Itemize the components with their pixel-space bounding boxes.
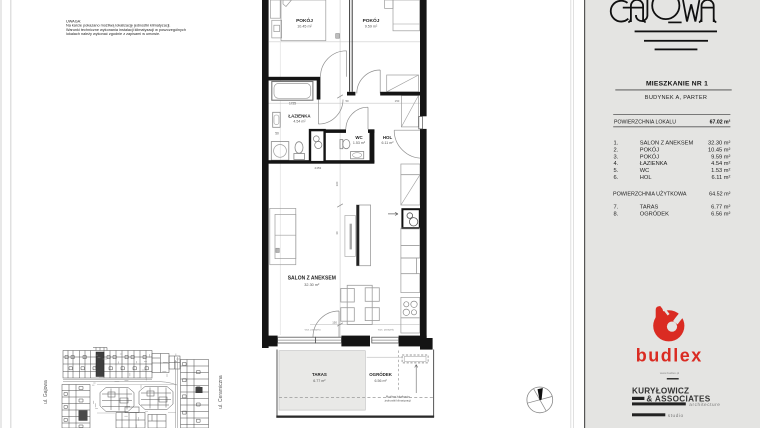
svg-text:POKÓJ: POKÓJ	[640, 147, 659, 154]
svg-text:67.02 m²: 67.02 m²	[710, 119, 731, 125]
svg-text:6.: 6.	[614, 175, 619, 181]
svg-text:SALON Z ANEKSEM: SALON Z ANEKSEM	[640, 141, 694, 147]
svg-text:studio: studio	[668, 413, 684, 418]
svg-text:wys. parapetu: wys. parapetu	[305, 328, 322, 332]
svg-text:ul. Gajowa: ul. Gajowa	[43, 380, 49, 404]
svg-text:2453: 2453	[315, 166, 322, 170]
svg-text:OGRÓDEK: OGRÓDEK	[640, 211, 669, 218]
svg-text:2.: 2.	[614, 148, 619, 154]
svg-text:8.: 8.	[614, 212, 619, 218]
svg-text:9.59 m²: 9.59 m²	[365, 25, 378, 29]
svg-text:wys. parapetu: wys. parapetu	[378, 328, 395, 332]
svg-text:1725: 1725	[289, 102, 296, 106]
svg-text:50: 50	[345, 99, 349, 103]
svg-text:50: 50	[275, 132, 279, 136]
svg-text:architecture: architecture	[689, 402, 720, 407]
svg-text:6.77 m²: 6.77 m²	[313, 379, 326, 383]
svg-text:OGRÓDEK: OGRÓDEK	[369, 372, 393, 377]
svg-text:150: 150	[332, 320, 337, 324]
svg-text:6.11 m²: 6.11 m²	[382, 141, 395, 145]
svg-text:3.: 3.	[614, 155, 619, 161]
svg-text:POWIERZCHNIA UŻYTKOWA: POWIERZCHNIA UŻYTKOWA	[613, 191, 687, 198]
svg-text:TARAS: TARAS	[640, 204, 659, 210]
svg-text:4.54 m²: 4.54 m²	[293, 120, 306, 124]
svg-text:ul. Ceramiczna: ul. Ceramiczna	[218, 375, 224, 409]
svg-text:budlex: budlex	[636, 346, 703, 366]
svg-text:MIESZKANIE NR 1: MIESZKANIE NR 1	[646, 80, 708, 87]
svg-text:1.53 m²: 1.53 m²	[711, 168, 730, 174]
svg-text:SALON Z ANEKSEM: SALON Z ANEKSEM	[288, 276, 336, 282]
svg-text:HOL: HOL	[383, 135, 393, 140]
svg-text:lokalach należy wykonać zgodni: lokalach należy wykonać zgodnie z zapisa…	[66, 32, 160, 36]
svg-text:jednostki klimatyzacji: jednostki klimatyzacji	[384, 399, 411, 403]
svg-text:6.56 m²: 6.56 m²	[375, 379, 388, 383]
svg-text:HOL: HOL	[640, 175, 652, 181]
svg-text:10.45 m²: 10.45 m²	[708, 148, 731, 154]
svg-text:10.45 m²: 10.45 m²	[297, 25, 312, 29]
svg-text:WC: WC	[640, 168, 649, 174]
svg-text:ŁAZIENKA: ŁAZIENKA	[640, 161, 668, 167]
svg-text:WC: WC	[355, 135, 363, 140]
svg-text:ŁAZIENKA: ŁAZIENKA	[288, 113, 311, 118]
svg-text:www.budlex.pl: www.budlex.pl	[660, 371, 680, 375]
svg-text:1.: 1.	[614, 141, 619, 147]
svg-text:30: 30	[335, 231, 339, 235]
svg-text:5.: 5.	[614, 168, 619, 174]
svg-text:150: 150	[395, 99, 400, 103]
svg-text:POKÓJ: POKÓJ	[640, 154, 659, 161]
svg-text:4.54 m²: 4.54 m²	[711, 161, 730, 167]
svg-text:6.56 m²: 6.56 m²	[711, 212, 730, 218]
svg-text:7.: 7.	[614, 204, 619, 210]
svg-text:6.77 m²: 6.77 m²	[711, 204, 730, 210]
svg-text:160: 160	[335, 181, 339, 186]
svg-text:4.: 4.	[614, 161, 619, 167]
svg-text:BUDYNEK A, PARTER: BUDYNEK A, PARTER	[645, 95, 707, 101]
svg-text:1.53 m²: 1.53 m²	[353, 141, 366, 145]
svg-text:TARAS: TARAS	[312, 372, 327, 377]
svg-text:32.30 m²: 32.30 m²	[304, 283, 320, 287]
svg-text:6.11 m²: 6.11 m²	[712, 175, 731, 181]
svg-text:32.30 m²: 32.30 m²	[708, 141, 731, 147]
svg-text:64.52 m²: 64.52 m²	[709, 192, 730, 198]
svg-text:POWIERZCHNIA LOKALU: POWIERZCHNIA LOKALU	[614, 119, 676, 125]
svg-text:9.59 m²: 9.59 m²	[711, 155, 730, 161]
